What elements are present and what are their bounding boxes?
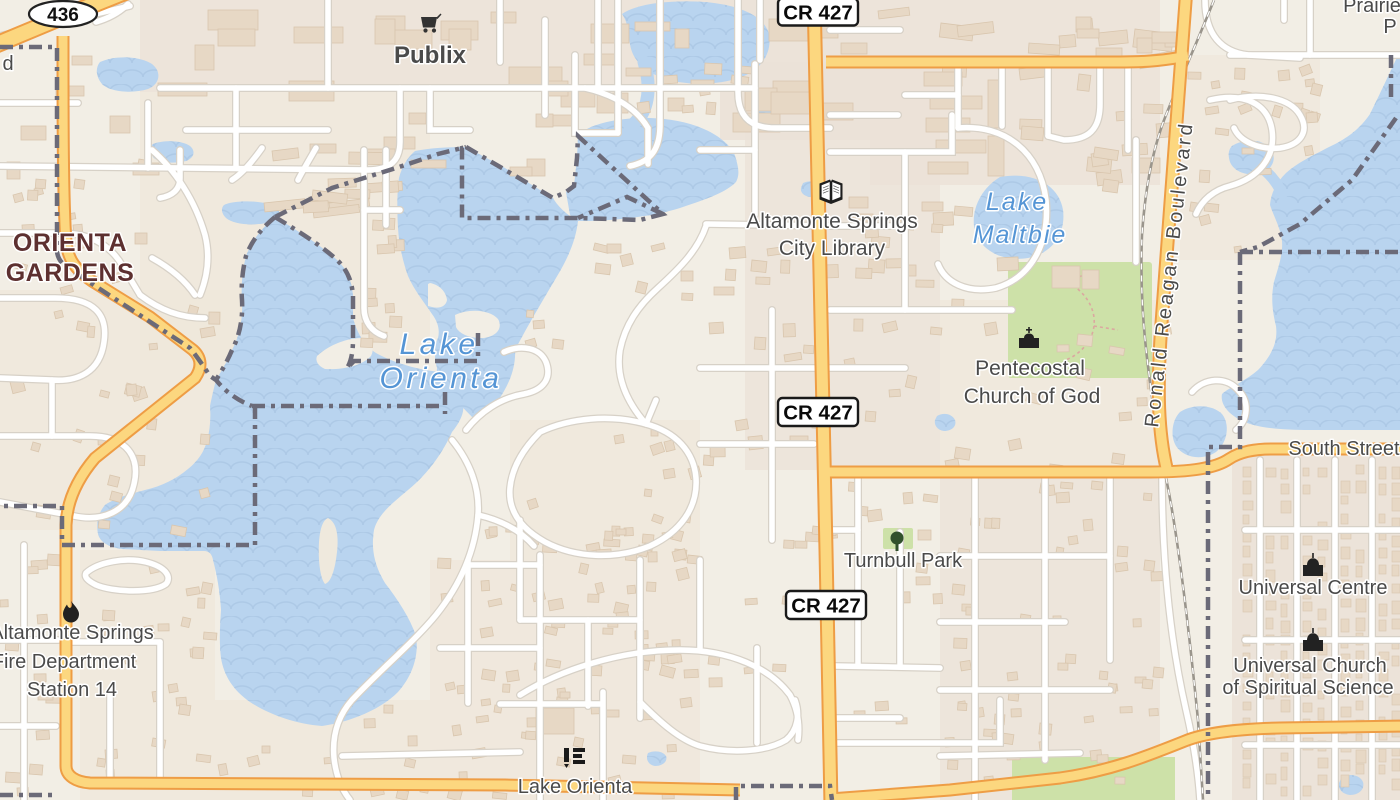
svg-text:Maltbie: Maltbie [973, 221, 1068, 249]
svg-text:CR 427: CR 427 [783, 401, 853, 424]
svg-text:Publix: Publix [394, 42, 467, 69]
svg-text:Altamonte Springs: Altamonte Springs [0, 622, 154, 644]
svg-text:South Street: South Street [1288, 438, 1400, 460]
svg-text:Universal Church: Universal Church [1233, 655, 1386, 677]
svg-text:of Spiritual Science: of Spiritual Science [1222, 677, 1393, 699]
svg-text:P: P [1383, 16, 1396, 38]
svg-text:Station 14: Station 14 [27, 679, 117, 701]
svg-text:CR 427: CR 427 [791, 594, 861, 617]
svg-text:Turnbull Park: Turnbull Park [844, 550, 963, 572]
svg-text:Church of God: Church of God [964, 385, 1101, 408]
svg-text:Altamonte Springs: Altamonte Springs [746, 210, 918, 233]
svg-text:436: 436 [47, 5, 79, 26]
svg-text:Fire Department: Fire Department [0, 651, 137, 673]
svg-text:City Library: City Library [779, 237, 886, 260]
svg-text:Lake: Lake [986, 188, 1048, 216]
svg-text:Orienta: Orienta [380, 362, 503, 395]
svg-text:Pentecostal: Pentecostal [975, 357, 1085, 380]
svg-text:Prairie: Prairie [1343, 0, 1400, 17]
svg-text:GARDENS: GARDENS [6, 259, 135, 287]
svg-text:d: d [2, 53, 13, 75]
svg-text:Lake: Lake [399, 328, 478, 361]
svg-text:Universal Centre: Universal Centre [1239, 577, 1388, 599]
svg-text:Lake Orienta: Lake Orienta [518, 776, 633, 798]
svg-text:ORIENTA: ORIENTA [13, 229, 127, 257]
svg-text:CR 427: CR 427 [783, 1, 853, 24]
